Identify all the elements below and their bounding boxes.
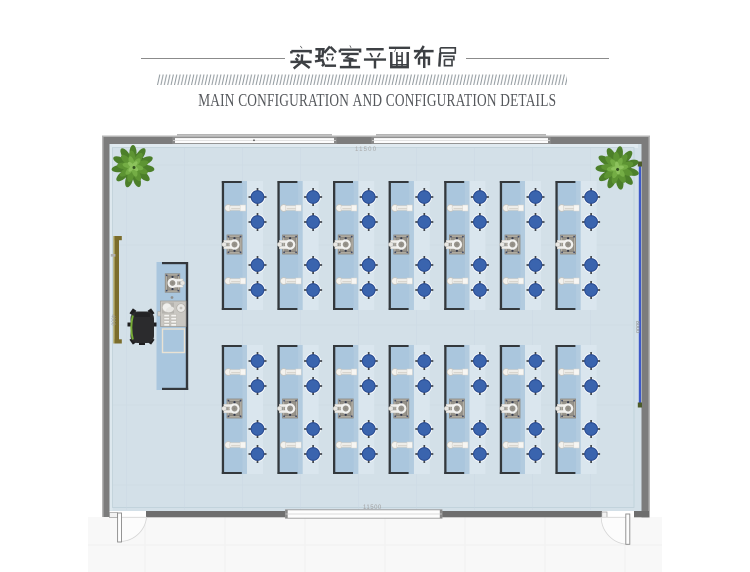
svg-text:11500: 11500 [363,505,382,511]
svg-text:11500: 11500 [355,147,377,153]
svg-text:8000: 8000 [634,321,640,333]
svg-text:4000: 4000 [110,314,116,325]
